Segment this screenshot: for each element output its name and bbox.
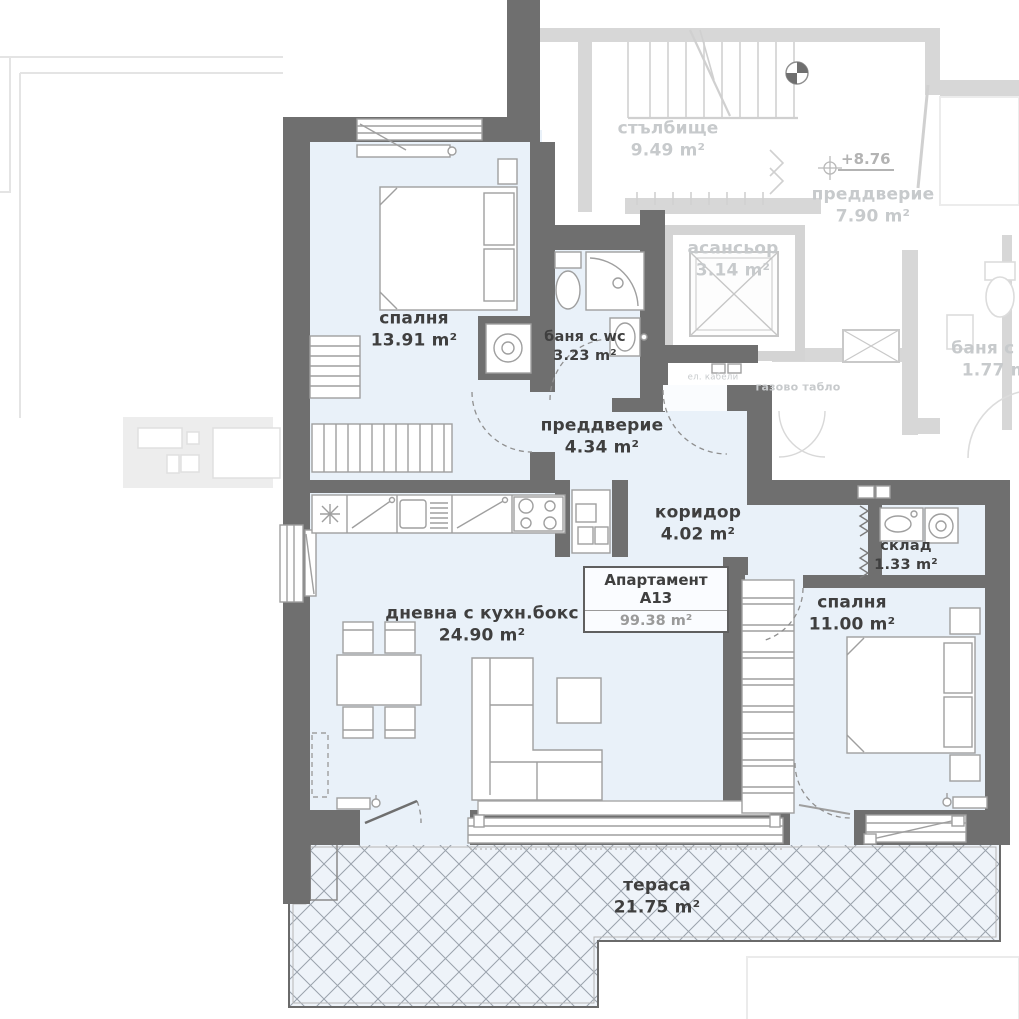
radiator [953,797,987,808]
gas-panel-box [843,330,899,362]
neighbor-door-swings [779,411,825,457]
room-label-entry-hall: преддверие4.34 m² [541,415,664,460]
low-cabinet [312,424,452,472]
wardrobe [742,580,794,813]
nightstand [498,159,517,184]
room-label-bathroom: баня с wc3.23 m² [544,328,626,366]
common-label-staircase: стълбище9.49 m² [618,118,719,163]
terrace-area [289,842,1000,1007]
pillow [944,697,972,747]
room-label-living: дневна с кухн.бокс24.90 m² [385,603,578,648]
toilet-tank [555,252,581,268]
section-marker-icon [786,62,808,84]
bedroom2-window [864,815,966,844]
gas-panel-label: газово табло [756,381,841,396]
common-label-hallway: преддверие7.90 m² [812,184,935,229]
electric-cables-label: ел. кабели [688,372,739,383]
common-label-neighbor-bathroom: баня с wc1.77 m² [951,338,1019,383]
apartment-total-area: 99.38 m² [585,610,727,631]
living-left-window [280,525,316,602]
chair [343,622,373,653]
pillow [484,249,514,301]
room-label-corridor: коридор4.02 m² [655,502,741,547]
room-label-bedroom2: спалня11.00 m² [809,592,895,637]
bottom-right-outline [747,957,1019,1019]
chair [385,707,415,738]
neighbor-outline-left [0,57,283,418]
room-label-bedroom1: спалня13.91 m² [371,308,457,353]
floor-plan-canvas: спалня13.91 m² баня с wc3.23 m² преддвер… [0,0,1019,1019]
level-mark: +8.76 [838,150,894,171]
apartment-title: Апартамент А13 [585,568,727,610]
coffee-table [557,678,601,723]
nightstand [950,755,980,781]
pillow [484,193,514,245]
apartment-info-box: Апартамент А13 99.38 m² [583,566,729,633]
room-label-terrace: тераса21.75 m² [614,875,700,920]
chair [343,707,373,738]
room-label-storage: склад1.33 m² [874,537,938,575]
kitchen-sink [400,500,426,528]
utility-panel-left [123,417,280,488]
living-bottom-window [468,801,783,849]
pillow [944,643,972,693]
symbol-asterisk [320,504,340,524]
radiator [337,798,370,809]
nightstand [950,608,980,634]
common-label-elevator: асансьор3.14 m² [687,238,778,283]
toilet-bowl [556,271,580,309]
dining-table [337,655,421,705]
